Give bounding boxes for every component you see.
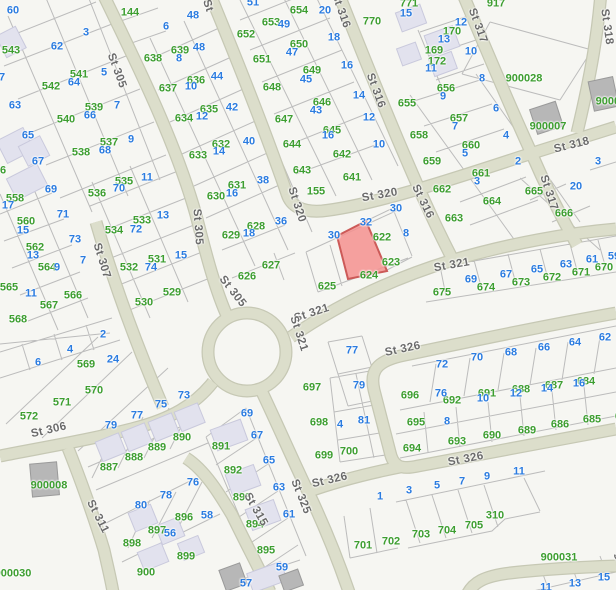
street-st307: [96, 222, 163, 407]
map-canvas: [0, 0, 616, 590]
street-network: [0, 0, 616, 590]
street-st326-loop: [373, 313, 616, 467]
street-st311: [68, 448, 113, 590]
street-st326-spur: [307, 467, 400, 492]
roundabout: [208, 313, 286, 391]
street-bottom-right: [466, 566, 616, 590]
street-st305: [102, 0, 228, 318]
street-st320: [209, 0, 287, 194]
highlighted-parcel[interactable]: [337, 221, 387, 279]
cadastral-map-viewport[interactable]: 5435425415395405375385355365565585605625…: [0, 0, 616, 590]
street-st320-st318: [287, 127, 616, 211]
